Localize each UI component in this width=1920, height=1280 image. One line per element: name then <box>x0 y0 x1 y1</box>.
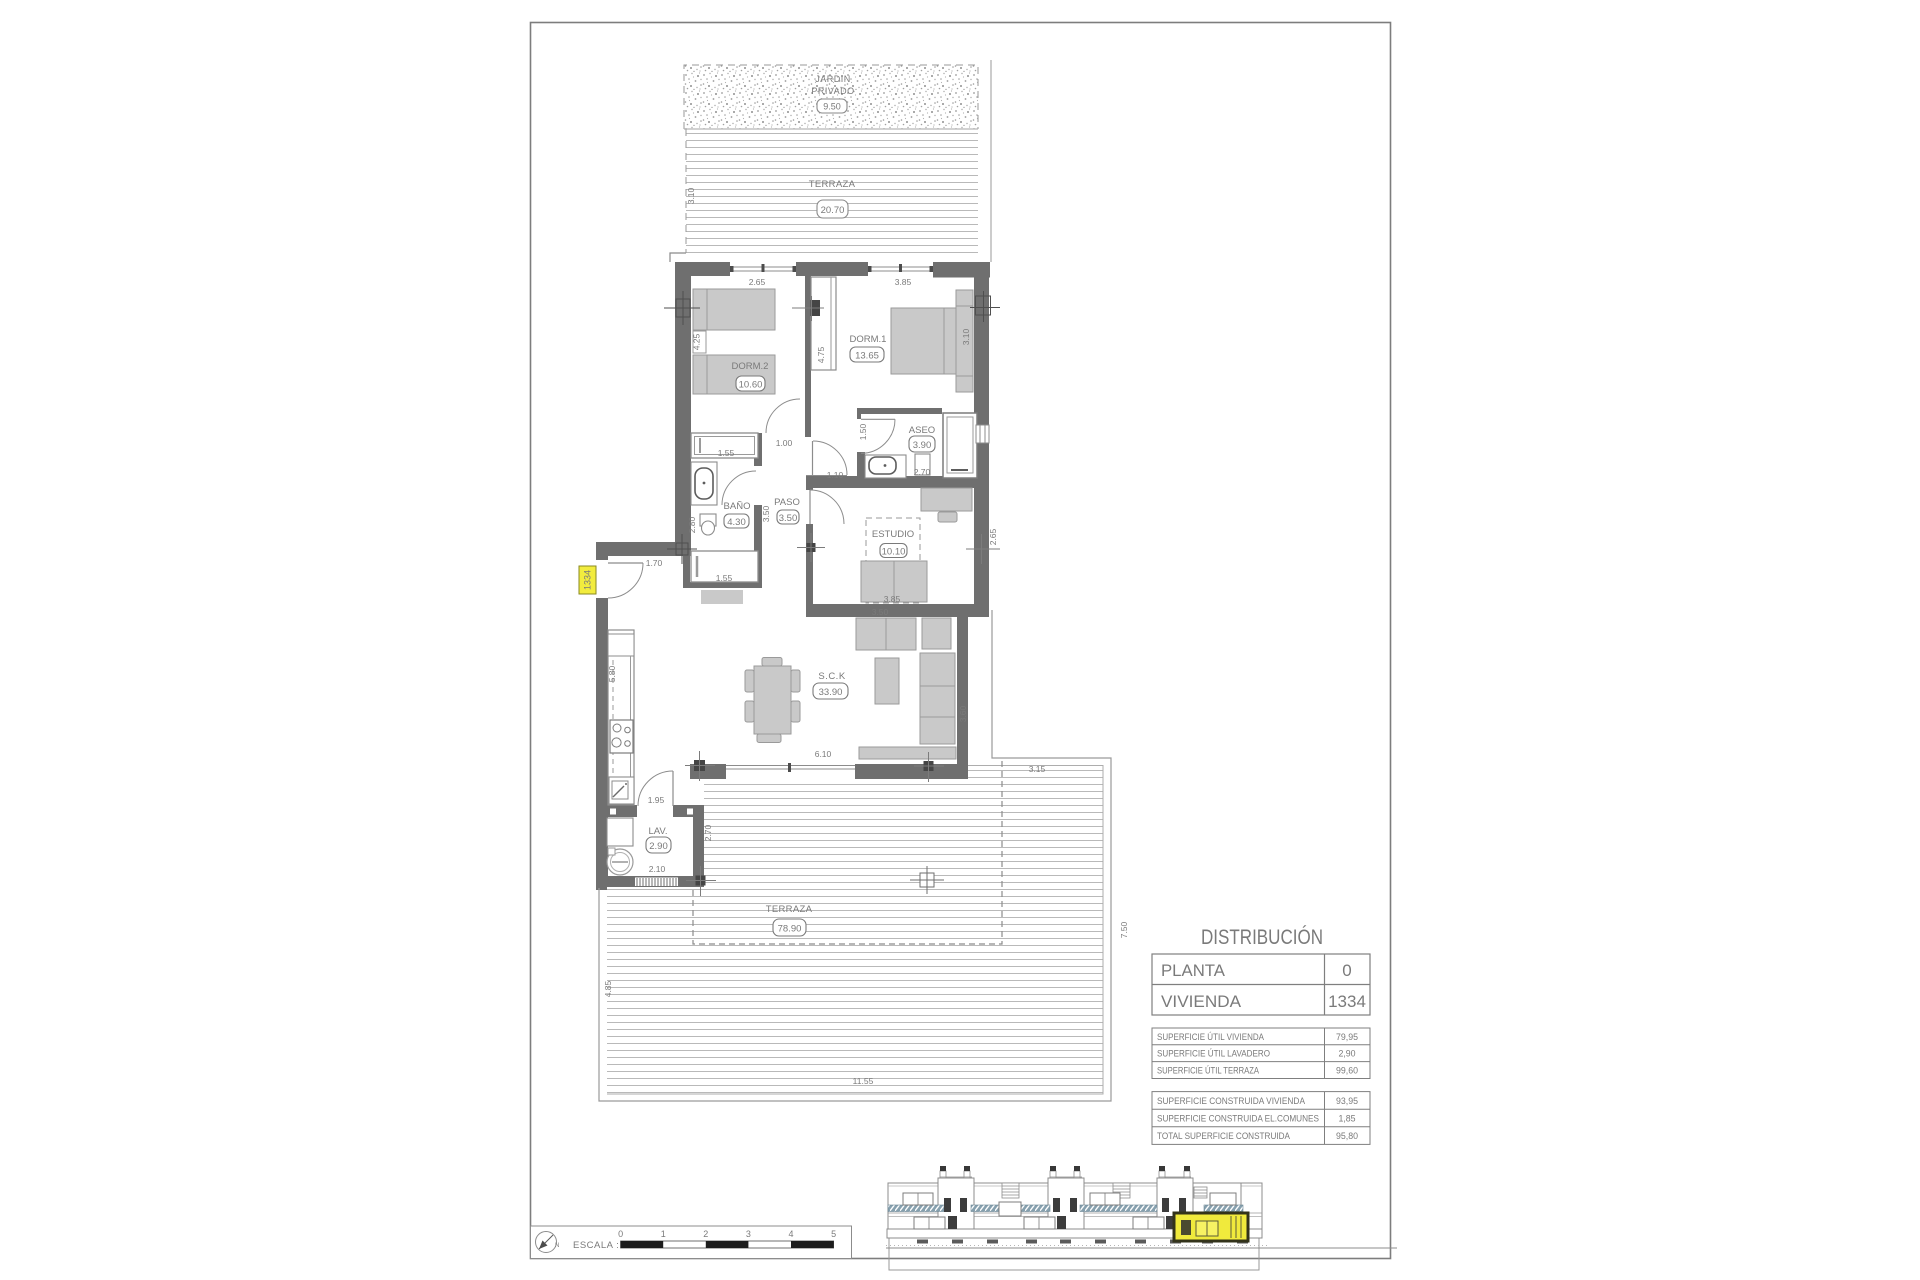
svg-text:SUPERFICIE ÚTIL VIVIENDA: SUPERFICIE ÚTIL VIVIENDA <box>1157 1032 1264 1042</box>
svg-text:1.70: 1.70 <box>646 558 663 568</box>
svg-text:2,90: 2,90 <box>1338 1049 1355 1059</box>
svg-text:3.60: 3.60 <box>958 705 968 722</box>
svg-text:2.70: 2.70 <box>914 467 931 477</box>
svg-text:PLANTA: PLANTA <box>1161 961 1226 980</box>
svg-text:1.00: 1.00 <box>776 438 793 448</box>
svg-text:SUPERFICIE CONSTRUIDA VIVIENDA: SUPERFICIE CONSTRUIDA VIVIENDA <box>1157 1096 1305 1106</box>
svg-text:JARDIN: JARDIN <box>815 74 851 84</box>
svg-text:93,95: 93,95 <box>1336 1096 1358 1106</box>
svg-text:BAÑO: BAÑO <box>724 501 751 512</box>
svg-text:13.65: 13.65 <box>855 351 879 362</box>
svg-text:6.10: 6.10 <box>815 749 832 759</box>
svg-text:10.10: 10.10 <box>882 547 906 558</box>
svg-text:78.90: 78.90 <box>778 924 802 935</box>
svg-text:7.50: 7.50 <box>1119 921 1129 938</box>
svg-text:2.80: 2.80 <box>687 516 697 533</box>
svg-text:5: 5 <box>831 1229 836 1239</box>
svg-text:S.C.K: S.C.K <box>818 671 845 682</box>
svg-text:TOTAL SUPERFICIE CONSTRUIDA: TOTAL SUPERFICIE CONSTRUIDA <box>1157 1131 1290 1141</box>
svg-text:3.50: 3.50 <box>872 607 889 617</box>
svg-text:TERRAZA: TERRAZA <box>766 904 813 915</box>
svg-text:ESTUDIO: ESTUDIO <box>872 529 914 540</box>
svg-text:95,80: 95,80 <box>1336 1131 1358 1141</box>
svg-text:DISTRIBUCIÓN: DISTRIBUCIÓN <box>1201 926 1323 949</box>
svg-text:1334: 1334 <box>1328 992 1366 1011</box>
svg-text:4.85: 4.85 <box>603 980 613 997</box>
svg-text:3.85: 3.85 <box>884 594 901 604</box>
svg-text:SUPERFICIE ÚTIL TERRAZA: SUPERFICIE ÚTIL TERRAZA <box>1157 1066 1259 1076</box>
svg-text:DORM.2: DORM.2 <box>732 361 769 372</box>
svg-text:99,60: 99,60 <box>1336 1066 1358 1076</box>
svg-text:4: 4 <box>788 1229 793 1239</box>
svg-text:1,85: 1,85 <box>1338 1114 1355 1124</box>
svg-text:4.75: 4.75 <box>816 346 826 363</box>
svg-text:3: 3 <box>746 1229 751 1239</box>
svg-text:10.60: 10.60 <box>739 380 763 391</box>
svg-text:79,95: 79,95 <box>1336 1032 1358 1042</box>
svg-text:ESCALA :: ESCALA : <box>573 1240 619 1251</box>
svg-text:2.70: 2.70 <box>703 824 713 841</box>
svg-text:1334: 1334 <box>583 570 593 590</box>
svg-text:3.50: 3.50 <box>779 513 798 524</box>
svg-text:DORM.1: DORM.1 <box>850 334 887 345</box>
svg-text:1.55: 1.55 <box>716 573 733 583</box>
svg-text:2: 2 <box>703 1229 708 1239</box>
svg-text:2.65: 2.65 <box>749 277 766 287</box>
svg-text:33.90: 33.90 <box>819 687 843 698</box>
svg-text:PASO: PASO <box>774 497 800 508</box>
svg-text:9.50: 9.50 <box>823 102 841 112</box>
svg-text:N: N <box>555 1243 559 1249</box>
svg-text:0: 0 <box>1342 961 1351 980</box>
svg-text:1.10: 1.10 <box>827 470 844 480</box>
svg-text:5.80: 5.80 <box>607 665 617 682</box>
svg-text:1.95: 1.95 <box>648 795 665 805</box>
svg-text:1.55: 1.55 <box>718 448 735 458</box>
svg-text:2.90: 2.90 <box>649 841 668 852</box>
svg-text:3.85: 3.85 <box>895 277 912 287</box>
svg-text:3.50: 3.50 <box>761 505 771 522</box>
svg-text:2.10: 2.10 <box>649 864 666 874</box>
svg-text:TERRAZA: TERRAZA <box>809 179 856 190</box>
svg-text:20.70: 20.70 <box>821 205 845 216</box>
svg-text:ASEO: ASEO <box>909 425 935 436</box>
svg-text:0: 0 <box>618 1229 623 1239</box>
svg-text:4.25: 4.25 <box>692 333 702 350</box>
svg-text:11.55: 11.55 <box>853 1076 874 1086</box>
svg-text:1: 1 <box>661 1229 666 1239</box>
svg-text:SUPERFICIE ÚTIL LAVADERO: SUPERFICIE ÚTIL LAVADERO <box>1157 1049 1270 1059</box>
svg-text:LAV.: LAV. <box>648 826 667 837</box>
svg-text:1.50: 1.50 <box>858 423 868 440</box>
svg-text:VIVIENDA: VIVIENDA <box>1161 992 1242 1011</box>
svg-text:3.15: 3.15 <box>1029 764 1046 774</box>
svg-text:2.65: 2.65 <box>988 528 998 545</box>
svg-text:SUPERFICIE CONSTRUIDA EL.COMUN: SUPERFICIE CONSTRUIDA EL.COMUNES <box>1157 1114 1319 1124</box>
svg-text:3.10: 3.10 <box>686 187 696 204</box>
svg-text:4.30: 4.30 <box>727 517 746 528</box>
svg-text:PRIVADO: PRIVADO <box>811 86 854 96</box>
svg-text:3.10: 3.10 <box>961 328 971 345</box>
svg-text:3.90: 3.90 <box>913 440 932 451</box>
